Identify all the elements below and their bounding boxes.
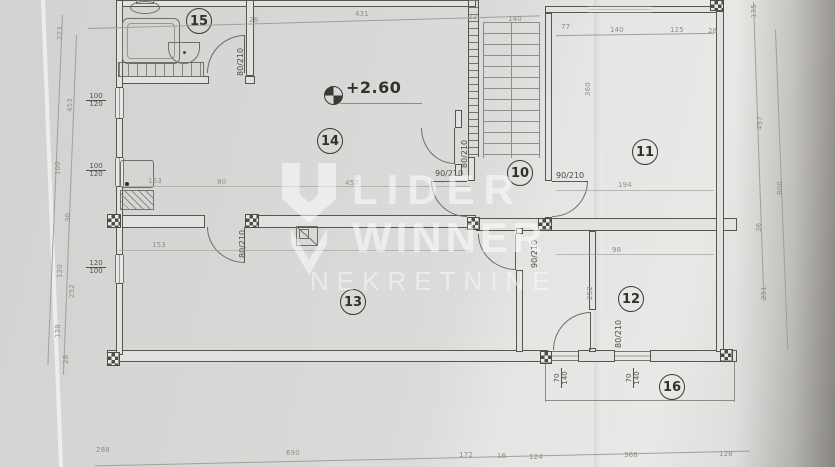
wall	[545, 13, 552, 181]
dim-label: 80	[217, 178, 226, 186]
terrace-edge	[545, 362, 546, 402]
door-arc	[553, 312, 591, 350]
room-label-11: 11	[632, 139, 658, 165]
column	[467, 217, 480, 230]
room-number: 15	[190, 14, 208, 29]
wall	[516, 228, 523, 234]
door-arc	[421, 128, 455, 164]
wall	[116, 76, 209, 84]
dim-label: 457	[345, 179, 359, 187]
dim-label: 288	[96, 446, 110, 454]
window-label-width: 70	[554, 368, 561, 388]
dim-label: 77	[561, 23, 570, 31]
door-leaf	[431, 181, 467, 182]
dim-label: 194	[618, 181, 632, 189]
hatched-wall	[468, 0, 479, 157]
room-label-12: 12	[618, 286, 644, 312]
wall	[716, 11, 724, 352]
sink-drain-icon	[183, 51, 186, 54]
door-label: 80/210	[236, 48, 245, 76]
door-arc	[478, 234, 516, 270]
dim-label: 223	[56, 26, 64, 40]
dim-label: 28	[62, 355, 70, 364]
dimension-line	[556, 33, 714, 36]
staircase	[483, 22, 540, 158]
dim-label: 36	[64, 213, 72, 222]
window-label: 100120	[86, 163, 106, 179]
wall	[468, 157, 475, 181]
dimension-line	[118, 250, 470, 251]
door-label: 80/210	[460, 140, 469, 168]
room-number: 12	[622, 292, 640, 307]
terrace-edge	[734, 362, 735, 402]
dim-label: 252	[586, 286, 594, 300]
elevation-line	[340, 103, 422, 104]
window-label-height: 140	[561, 368, 569, 388]
wall	[116, 283, 123, 355]
window-label-width: 70	[626, 368, 633, 388]
room-number: 16	[663, 380, 681, 395]
dim-label: 36	[755, 223, 763, 232]
dim-label: 128	[719, 450, 733, 458]
dim-label: 457	[756, 116, 764, 130]
dimension-line	[120, 186, 470, 187]
window	[115, 255, 124, 283]
toilet-tank-icon	[136, 0, 154, 4]
window-label-width: 100	[86, 93, 106, 100]
window-label: 120100	[86, 260, 106, 276]
column	[538, 218, 552, 231]
dimension-line	[753, 2, 764, 302]
window	[548, 351, 578, 361]
column	[540, 351, 552, 364]
door-leaf	[552, 181, 588, 182]
dim-label: 98	[612, 246, 621, 254]
column	[245, 214, 259, 228]
dim-label: 140	[508, 15, 522, 23]
dim-label: 28	[708, 27, 717, 35]
wall	[245, 215, 476, 228]
column	[710, 0, 724, 11]
window-label-height: 120	[86, 100, 106, 108]
room-number: 11	[636, 145, 654, 160]
dim-label: 16	[497, 452, 506, 460]
dim-label: 120	[56, 264, 64, 278]
column	[720, 349, 733, 362]
door-label: 90/210	[435, 169, 463, 178]
terrace-edge	[545, 400, 735, 401]
bathroom-counter	[118, 62, 204, 77]
dim-label: 172	[459, 451, 473, 459]
room-label-10: 10	[507, 160, 533, 186]
window	[115, 88, 124, 118]
wall	[455, 110, 462, 128]
room-number: 13	[344, 295, 362, 310]
dimension-line	[556, 254, 714, 255]
door-leaf	[590, 312, 591, 350]
dimension-line	[95, 451, 750, 467]
wall	[516, 270, 523, 352]
door-leaf	[454, 128, 455, 164]
dim-label: 453	[66, 98, 74, 112]
window	[615, 351, 650, 361]
door-label: 90/210	[530, 240, 539, 268]
window-label-width: 100	[86, 163, 106, 170]
dimension-line	[556, 190, 714, 191]
shaft-symbol	[296, 226, 318, 246]
hatched-counter	[120, 190, 154, 210]
room-label-15: 15	[186, 8, 212, 34]
door-arc	[552, 181, 588, 217]
dim-label: 251	[760, 286, 768, 300]
dimension-line	[63, 35, 77, 375]
wall	[116, 118, 123, 158]
window-label-height: 100	[86, 267, 106, 275]
shower-inner-icon	[127, 23, 175, 59]
dim-label: 252	[68, 284, 76, 298]
dim-label: 153	[152, 241, 166, 249]
dim-label: 138	[54, 324, 62, 338]
door-leaf	[515, 234, 516, 270]
dim-label: 360	[584, 82, 592, 96]
window	[588, 6, 652, 13]
dim-label: 135	[750, 4, 758, 18]
dim-label: 690	[286, 449, 300, 457]
wall	[246, 0, 254, 76]
window-label-height: 120	[86, 170, 106, 178]
window-label: 100120	[86, 93, 106, 109]
window-label: 70140	[554, 368, 570, 388]
elevation-label: +2.60	[346, 78, 401, 97]
dim-label: 140	[610, 26, 624, 34]
dimension-line	[47, 15, 63, 365]
dim-label: 124	[529, 453, 543, 461]
dim-label: 100	[54, 161, 62, 175]
dim-label: 125	[670, 26, 684, 34]
room-label-14: 14	[317, 128, 343, 154]
shaft-inner-square	[299, 229, 309, 239]
room-number: 14	[321, 134, 339, 149]
dim-label: 153	[148, 177, 162, 185]
room-label-16: 16	[659, 374, 685, 400]
dim-label: 26	[249, 16, 258, 24]
dim-label: 366	[624, 451, 638, 459]
floorplan-drawing: 80/210 80/210 90/210 90/210 90/210 80/21…	[0, 0, 835, 467]
window-label: 70140	[626, 368, 642, 388]
window-label-width: 120	[86, 260, 106, 267]
door-label: 80/210	[238, 230, 247, 258]
window-label-height: 140	[633, 368, 641, 388]
wall	[245, 76, 255, 84]
wall	[116, 0, 476, 7]
wall	[107, 350, 548, 362]
dim-label: 800	[776, 181, 784, 195]
dim-label: 22	[468, 13, 477, 21]
column	[107, 352, 120, 366]
door-label: 80/210	[614, 320, 623, 348]
wall	[578, 350, 615, 362]
room-label-13: 13	[340, 289, 366, 315]
room-number: 10	[511, 166, 529, 181]
door-label: 90/210	[556, 171, 584, 180]
dim-label: 431	[355, 10, 369, 18]
floorplan-photo: 80/210 80/210 90/210 90/210 90/210 80/21…	[0, 0, 835, 467]
column	[107, 214, 121, 228]
